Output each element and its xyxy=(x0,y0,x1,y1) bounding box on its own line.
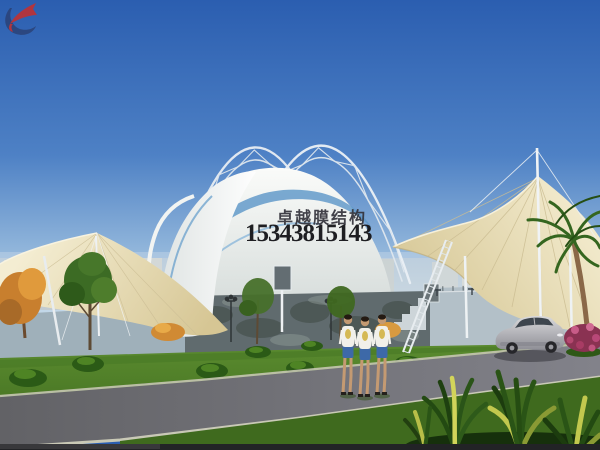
basketball-backboard xyxy=(274,266,291,290)
scene-illustration xyxy=(0,0,600,450)
rendering-canvas: 卓越膜结构 15343815143 xyxy=(0,0,600,450)
headlight xyxy=(557,334,563,337)
